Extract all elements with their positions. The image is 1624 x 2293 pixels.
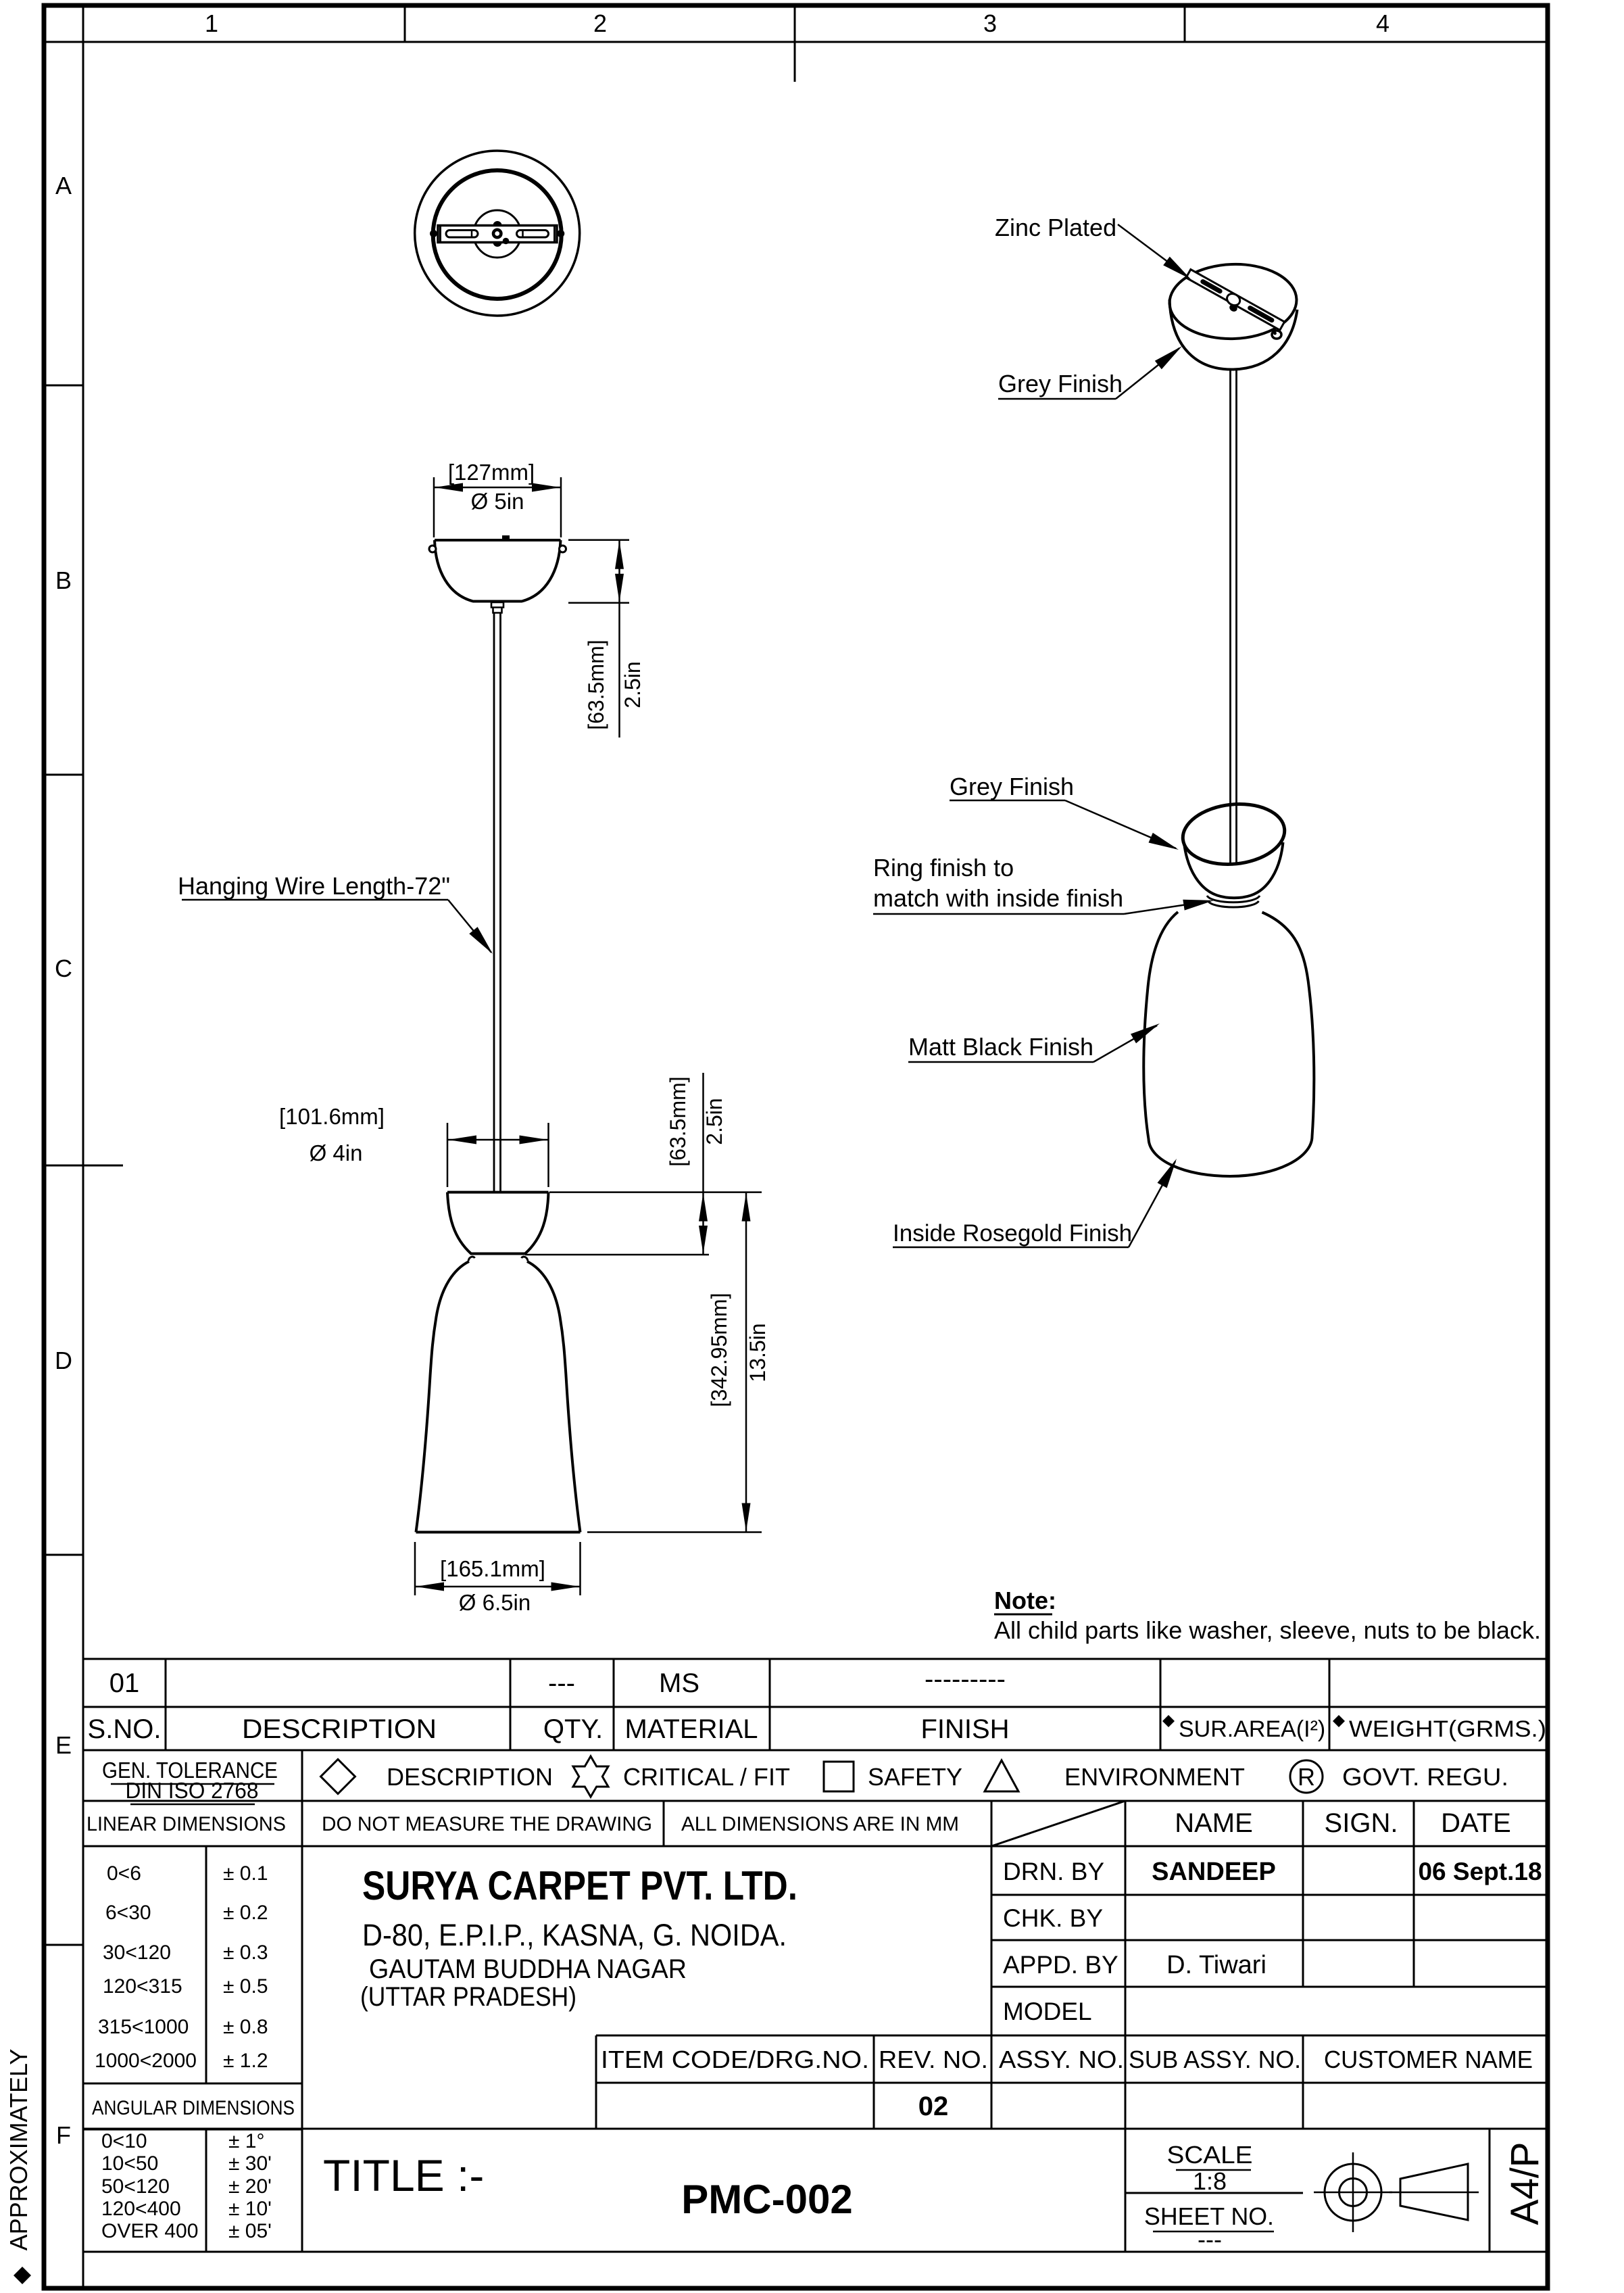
svg-text:[101.6mm]: [101.6mm] (279, 1104, 385, 1129)
svg-text:6<30: 6<30 (105, 1902, 151, 1924)
svg-text:C: C (55, 955, 72, 982)
svg-text:[342.95mm]: [342.95mm] (707, 1293, 731, 1407)
svg-text:---: --- (548, 1668, 575, 1698)
svg-text:DATE: DATE (1441, 1808, 1511, 1838)
svg-text:(UTTAR PRADESH): (UTTAR PRADESH) (360, 1982, 576, 2012)
svg-text:GOVT. REGU.: GOVT. REGU. (1342, 1763, 1508, 1791)
svg-text:GAUTAM BUDDHA NAGAR: GAUTAM BUDDHA NAGAR (369, 1954, 687, 1984)
svg-text:ENVIRONMENT: ENVIRONMENT (1064, 1763, 1245, 1791)
svg-text:Ring finish to: Ring finish to (873, 854, 1014, 882)
svg-text:Hanging Wire Length-72": Hanging Wire Length-72" (178, 872, 450, 900)
svg-text:D-80, E.P.I.P., KASNA, G. NOID: D-80, E.P.I.P., KASNA, G. NOIDA. (362, 1918, 787, 1952)
svg-text:1000<2000: 1000<2000 (95, 2050, 197, 2072)
svg-text:CRITICAL / FIT: CRITICAL / FIT (623, 1763, 790, 1791)
svg-text:3: 3 (983, 9, 997, 37)
svg-text:DESCRIPTION: DESCRIPTION (242, 1714, 437, 1744)
svg-text:DRN. BY: DRN. BY (1003, 1858, 1104, 1885)
svg-text:APPROXIMATELY: APPROXIMATELY (5, 2049, 32, 2251)
svg-text:± 1°: ± 1° (228, 2130, 264, 2152)
svg-text:---------: --------- (925, 1664, 1006, 1694)
svg-text:E: E (55, 1731, 72, 1759)
svg-text:[63.5mm]: [63.5mm] (666, 1076, 690, 1166)
svg-text:MS: MS (659, 1668, 699, 1698)
svg-text:ANGULAR DIMENSIONS: ANGULAR DIMENSIONS (92, 2097, 295, 2119)
svg-text:S.NO.: S.NO. (88, 1714, 162, 1744)
svg-text:SCALE: SCALE (1167, 2141, 1253, 2169)
svg-text:ASSY. NO.: ASSY. NO. (999, 2046, 1124, 2073)
svg-text:13.5in: 13.5in (745, 1323, 770, 1382)
svg-text:SAFETY: SAFETY (868, 1763, 962, 1791)
svg-text:CHK. BY: CHK. BY (1003, 1904, 1103, 1932)
svg-text:Matt Black Finish: Matt Black Finish (908, 1033, 1093, 1061)
svg-text:ITEM CODE/DRG.NO.: ITEM CODE/DRG.NO. (601, 2046, 869, 2073)
svg-text:LINEAR DIMENSIONS: LINEAR DIMENSIONS (87, 1813, 286, 1835)
svg-text:REV. NO.: REV. NO. (879, 2046, 988, 2073)
svg-text:0<10: 0<10 (101, 2130, 147, 2152)
svg-text:TITLE :-: TITLE :- (323, 2150, 484, 2200)
svg-text:Note:: Note: (994, 1587, 1056, 1614)
svg-text:A: A (55, 172, 72, 199)
svg-text:DIN ISO 2768: DIN ISO 2768 (126, 1778, 259, 1803)
svg-text:[63.5mm]: [63.5mm] (584, 639, 608, 729)
svg-text:± 0.3: ± 0.3 (223, 1941, 268, 1964)
svg-text:---: --- (1198, 2225, 1222, 2253)
svg-text:SUR.AREA(I²): SUR.AREA(I²) (1179, 1716, 1325, 1742)
svg-text:120<400: 120<400 (101, 2198, 181, 2220)
svg-text:10<50: 10<50 (101, 2152, 158, 2175)
svg-text:SURYA CARPET PVT. LTD.: SURYA CARPET PVT. LTD. (362, 1863, 797, 1908)
svg-text:[165.1mm]: [165.1mm] (440, 1556, 545, 1581)
svg-text:WEIGHT(GRMS.): WEIGHT(GRMS.) (1349, 1716, 1546, 1742)
svg-text:± 0.8: ± 0.8 (223, 2016, 268, 2038)
svg-text:4: 4 (1376, 9, 1389, 37)
svg-text:± 20': ± 20' (228, 2175, 272, 2198)
svg-text:02: 02 (918, 2092, 949, 2121)
svg-text:01: 01 (109, 1668, 140, 1698)
svg-text:FINISH: FINISH (920, 1714, 1009, 1744)
svg-text:Inside Rosegold Finish: Inside Rosegold Finish (893, 1220, 1132, 1247)
svg-text:± 30': ± 30' (228, 2152, 272, 2175)
svg-text:2: 2 (593, 9, 607, 37)
svg-text:D. Tiwari: D. Tiwari (1166, 1951, 1266, 1979)
svg-text:50<120: 50<120 (101, 2175, 170, 2198)
svg-text:2.5in: 2.5in (620, 661, 645, 708)
svg-text:± 1.2: ± 1.2 (223, 2050, 268, 2072)
svg-text:± 10': ± 10' (228, 2198, 272, 2220)
svg-text:PMC-002: PMC-002 (681, 2177, 852, 2222)
svg-text:DO NOT MEASURE THE DRAWING: DO NOT MEASURE THE DRAWING (322, 1813, 652, 1835)
svg-text:0<6: 0<6 (107, 1862, 141, 1885)
svg-text:NAME: NAME (1175, 1808, 1253, 1838)
svg-text:30<120: 30<120 (103, 1941, 171, 1964)
svg-text:MODEL: MODEL (1003, 1998, 1092, 2025)
svg-text:QTY.: QTY. (543, 1714, 603, 1744)
svg-text:R: R (1298, 1763, 1315, 1791)
svg-text:Ø 4in: Ø 4in (310, 1140, 363, 1165)
svg-text:D: D (55, 1347, 72, 1374)
svg-text:B: B (55, 566, 72, 594)
svg-text:SIGN.: SIGN. (1325, 1808, 1398, 1838)
svg-text:± 0.2: ± 0.2 (223, 1902, 268, 1924)
svg-text:Grey Finish: Grey Finish (998, 370, 1123, 397)
svg-text:1: 1 (205, 9, 218, 37)
svg-text:SUB ASSY. NO.: SUB ASSY. NO. (1129, 2046, 1301, 2073)
svg-text:DESCRIPTION: DESCRIPTION (387, 1763, 553, 1791)
svg-text:APPD. BY: APPD. BY (1003, 1951, 1118, 1979)
svg-text:Grey Finish: Grey Finish (950, 773, 1074, 800)
svg-text:ALL DIMENSIONS ARE IN MM: ALL DIMENSIONS ARE IN MM (681, 1813, 959, 1835)
svg-text:A4/P: A4/P (1503, 2142, 1547, 2225)
svg-text:± 0.5: ± 0.5 (223, 1975, 268, 1998)
svg-text:All child parts like washer, s: All child parts like washer, sleeve, nut… (994, 1616, 1541, 1644)
svg-text:Ø 6.5in: Ø 6.5in (459, 1590, 531, 1615)
svg-text:[127mm]: [127mm] (448, 460, 535, 485)
svg-text:120<315: 120<315 (103, 1975, 182, 1998)
svg-text:± 05': ± 05' (228, 2220, 272, 2242)
svg-text:315<1000: 315<1000 (98, 2016, 189, 2038)
svg-text:SANDEEP: SANDEEP (1152, 1858, 1276, 1886)
svg-text:Zinc Plated: Zinc Plated (995, 214, 1116, 241)
svg-text:06 Sept.18: 06 Sept.18 (1418, 1858, 1542, 1885)
svg-text:Ø 5in: Ø 5in (471, 489, 524, 514)
svg-text:2.5in: 2.5in (702, 1098, 727, 1144)
svg-text:match with inside finish: match with inside finish (873, 884, 1123, 912)
svg-text:CUSTOMER NAME: CUSTOMER NAME (1324, 2046, 1533, 2073)
svg-text:F: F (56, 2121, 71, 2149)
svg-text:1:8: 1:8 (1193, 2167, 1227, 2195)
svg-text:OVER 400: OVER 400 (101, 2220, 198, 2242)
svg-text:± 0.1: ± 0.1 (223, 1862, 268, 1885)
svg-text:MATERIAL: MATERIAL (624, 1714, 758, 1744)
